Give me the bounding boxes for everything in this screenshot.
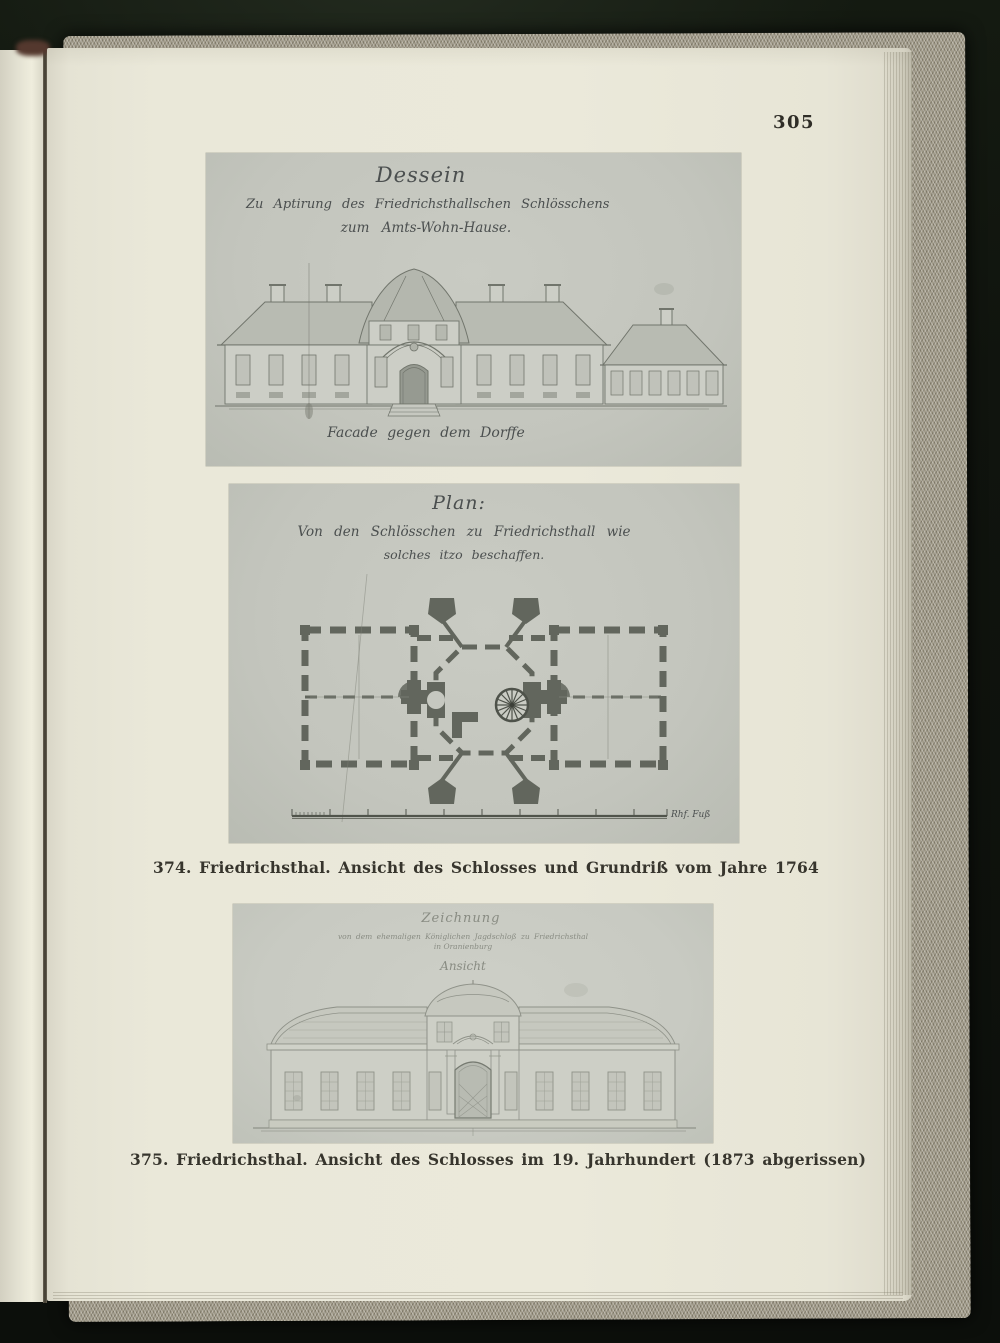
plate-plan-1764: Plan: Von den Schlösschen zu Friedrichst…	[229, 484, 739, 843]
page-edge-stack-bottom	[53, 1292, 903, 1301]
plate3-subtitle-1: von dem ehemaligen Königlichen Jagdschlo…	[323, 932, 603, 941]
book-page: 305 Dessein Zu Aptirung des Friedrichsth…	[47, 48, 912, 1301]
plate1-drawing-caption: Facade gegen dem Dorffe	[316, 425, 536, 441]
plate3-view-label: Ansicht	[383, 959, 543, 973]
page-edge-stack	[882, 52, 912, 1295]
plate2-title: Plan:	[379, 492, 539, 514]
spine-corner-top	[16, 40, 50, 56]
plate-elevation-1764: Dessein Zu Aptirung des Friedrichsthalls…	[206, 153, 741, 466]
figure-375-caption: 375. Friedrichsthal. Ansicht des Schloss…	[130, 1150, 830, 1169]
plate2-subtitle-1: Von den Schlösschen zu Friedrichsthall w…	[284, 524, 644, 540]
plate-elevation-19c: Zeichnung von dem ehemaligen Königlichen…	[233, 904, 713, 1143]
plate2-scale-label: Rhf. Fuß	[671, 810, 731, 820]
plate1-title: Dessein	[206, 163, 636, 187]
plate1-subtitle-1: Zu Aptirung des Friedrichsthallschen Sch…	[246, 197, 576, 212]
floor-plan-drawing-1764	[247, 572, 721, 834]
plate3-subtitle-2: in Oranienburg	[383, 942, 543, 951]
page-number: 305	[773, 112, 815, 133]
plate2-subtitle-2: solches itzo beschaffen.	[364, 547, 564, 562]
figure-374-caption: 374. Friedrichsthal. Ansicht des Schloss…	[153, 858, 793, 877]
scanned-book-photo: { "page": { "number": "305" }, "plate_17…	[0, 0, 1000, 1343]
elevation-drawing-1764	[209, 261, 734, 421]
plate3-title: Zeichnung	[371, 911, 551, 926]
facing-page-edge	[0, 50, 44, 1302]
elevation-drawing-19c	[241, 980, 705, 1138]
plate1-subtitle-2: zum Amts-Wohn-Hause.	[321, 220, 531, 236]
